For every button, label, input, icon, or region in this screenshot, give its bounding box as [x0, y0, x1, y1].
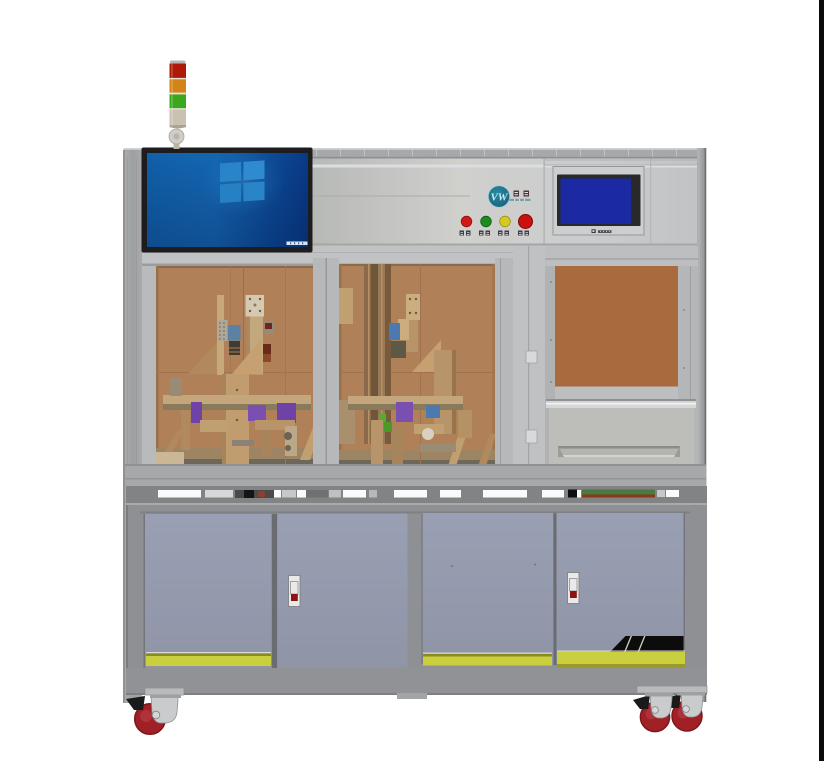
svg-text:VW: VW: [490, 192, 508, 204]
